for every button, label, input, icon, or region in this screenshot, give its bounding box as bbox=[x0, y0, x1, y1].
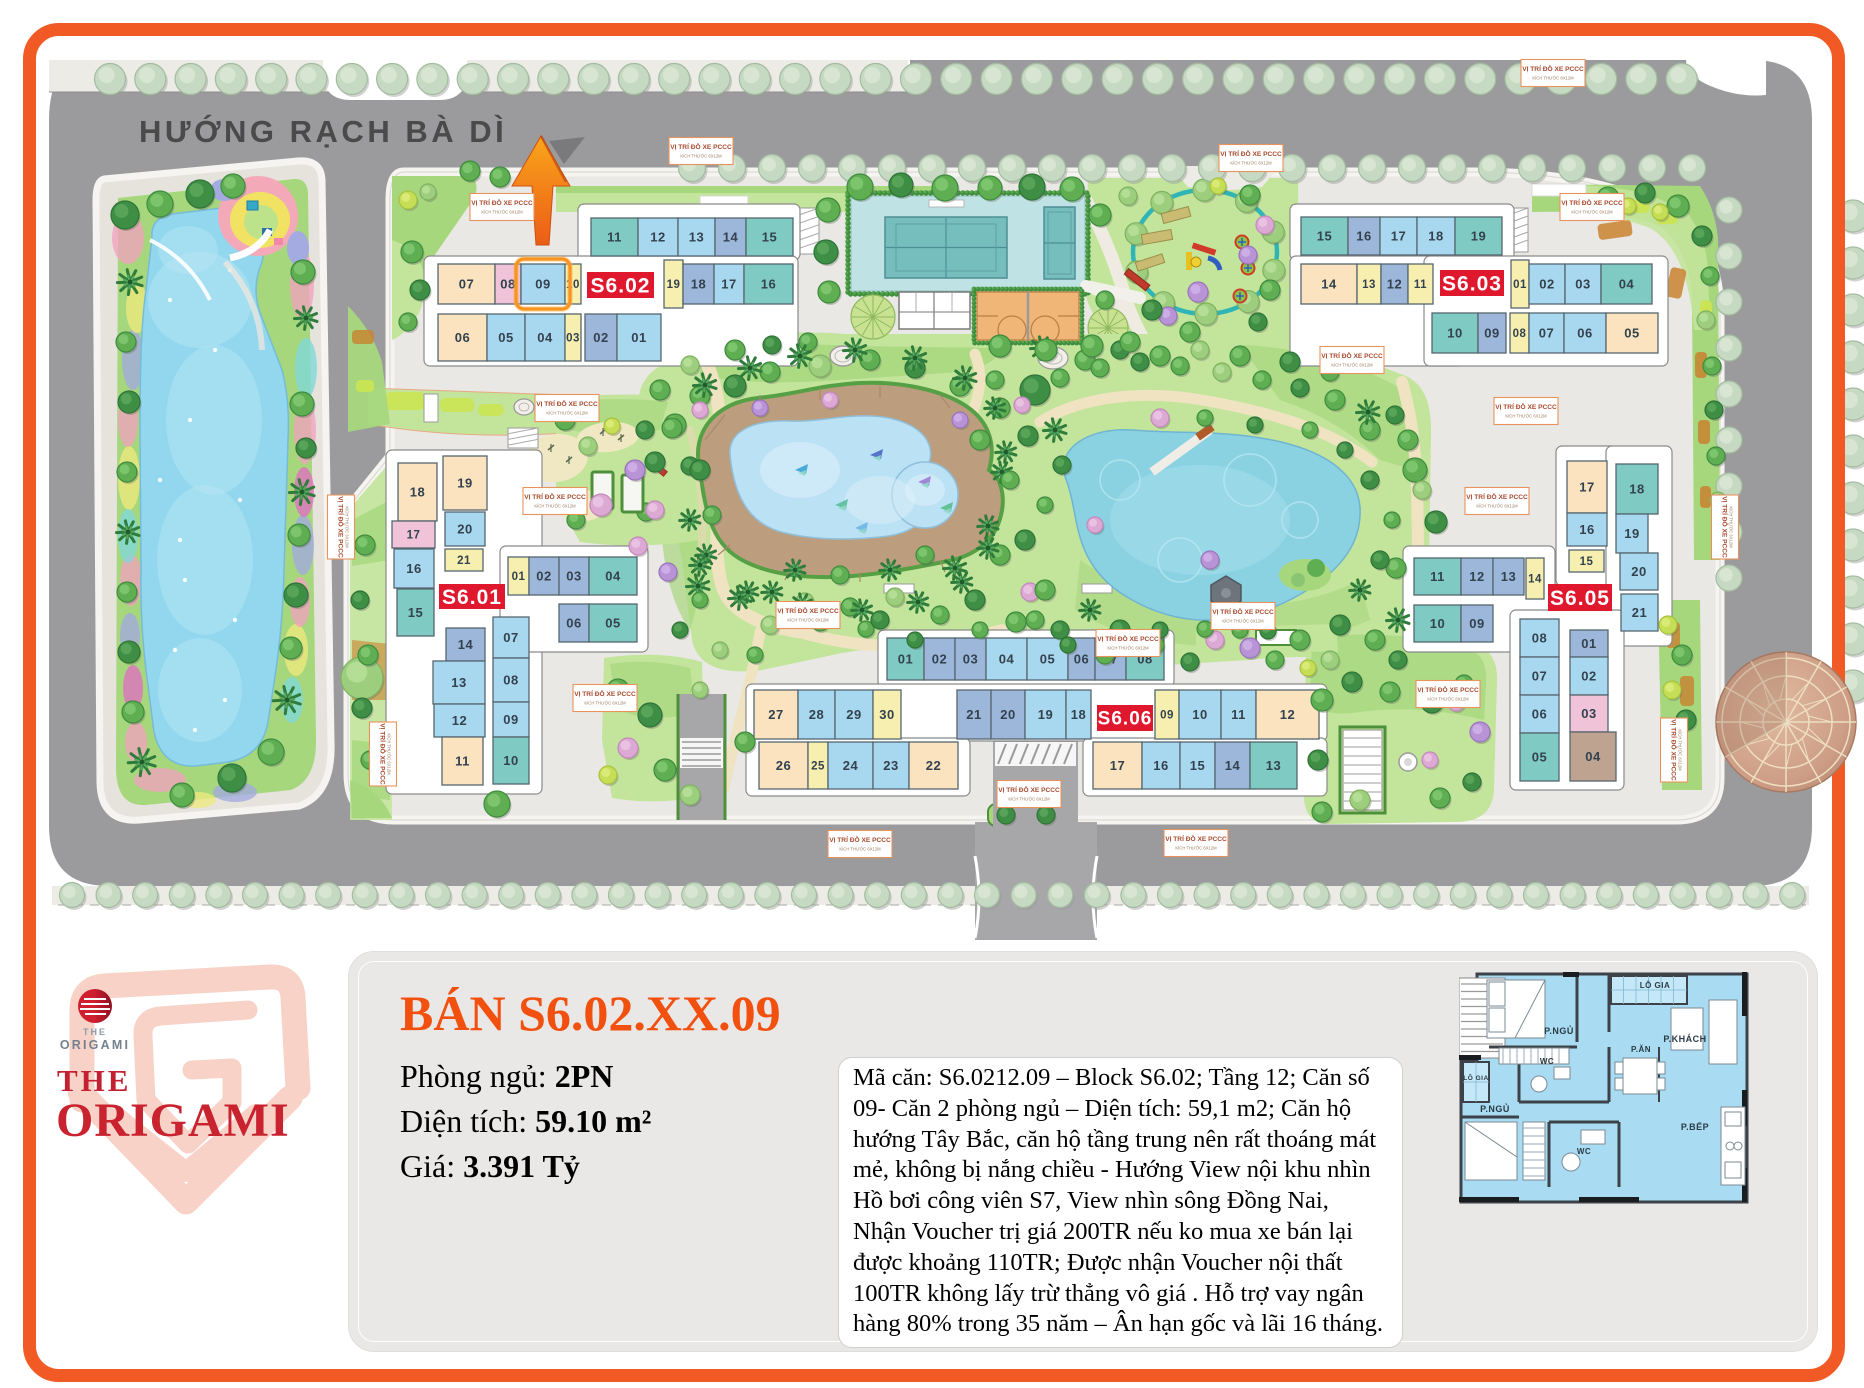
svg-text:VỊ TRÍ ĐỖ XE PCCC: VỊ TRÍ ĐỖ XE PCCC bbox=[1212, 607, 1274, 616]
svg-text:18: 18 bbox=[691, 277, 706, 292]
svg-text:VỊ TRÍ ĐỖ XE PCCC: VỊ TRÍ ĐỖ XE PCCC bbox=[1561, 198, 1623, 207]
svg-text:27: 27 bbox=[768, 707, 783, 722]
svg-text:17: 17 bbox=[407, 530, 421, 542]
svg-text:14: 14 bbox=[1225, 758, 1241, 773]
svg-text:13: 13 bbox=[1501, 569, 1516, 584]
svg-text:06: 06 bbox=[1532, 707, 1547, 722]
svg-text:09: 09 bbox=[535, 277, 550, 292]
svg-text:VỊ TRÍ ĐỖ XE PCCC: VỊ TRÍ ĐỖ XE PCCC bbox=[777, 606, 839, 615]
svg-text:KÍCH THƯỚC 6X12M: KÍCH THƯỚC 6X12M bbox=[1427, 697, 1469, 702]
svg-text:07: 07 bbox=[503, 630, 518, 645]
svg-text:11: 11 bbox=[1231, 707, 1246, 722]
svg-text:VỊ TRÍ ĐỖ XE PCCC: VỊ TRÍ ĐỖ XE PCCC bbox=[1321, 351, 1383, 360]
svg-text:17: 17 bbox=[1110, 758, 1125, 773]
svg-text:10: 10 bbox=[1430, 616, 1445, 631]
svg-text:02: 02 bbox=[593, 330, 608, 345]
svg-text:17: 17 bbox=[1579, 480, 1594, 495]
svg-text:LÔ GIA: LÔ GIA bbox=[1463, 1073, 1488, 1082]
svg-text:KÍCH THƯỚC 6X12M: KÍCH THƯỚC 6X12M bbox=[1532, 76, 1574, 81]
svg-text:P.NGỦ: P.NGỦ bbox=[1544, 1025, 1574, 1036]
svg-text:16: 16 bbox=[1356, 229, 1371, 244]
svg-text:05: 05 bbox=[1532, 750, 1547, 765]
svg-text:17: 17 bbox=[1391, 229, 1406, 244]
svg-text:05: 05 bbox=[498, 330, 513, 345]
svg-text:13: 13 bbox=[1362, 279, 1376, 291]
svg-text:13: 13 bbox=[1266, 758, 1281, 773]
svg-text:19: 19 bbox=[1038, 707, 1053, 722]
svg-text:HƯỚNG RẠCH BÀ DÌ: HƯỚNG RẠCH BÀ DÌ bbox=[139, 113, 507, 149]
svg-text:01: 01 bbox=[631, 330, 646, 345]
svg-text:29: 29 bbox=[846, 707, 861, 722]
svg-text:18: 18 bbox=[1071, 707, 1086, 722]
svg-text:VỊ TRÍ ĐỖ XE PCCC: VỊ TRÍ ĐỖ XE PCCC bbox=[379, 723, 388, 785]
svg-text:KÍCH THƯỚC 6X12M: KÍCH THƯỚC 6X12M bbox=[481, 210, 523, 215]
svg-text:VỊ TRÍ ĐỖ XE PCCC: VỊ TRÍ ĐỖ XE PCCC bbox=[1417, 685, 1479, 694]
svg-text:02: 02 bbox=[1581, 669, 1596, 684]
svg-text:10: 10 bbox=[1192, 707, 1207, 722]
svg-text:KÍCH THƯỚC 6X12M: KÍCH THƯỚC 6X12M bbox=[1230, 161, 1272, 166]
svg-text:KÍCH THƯỚC 6X12M: KÍCH THƯỚC 6X12M bbox=[1175, 846, 1217, 851]
svg-text:KÍCH THƯỚC 6X12M: KÍCH THƯỚC 6X12M bbox=[1008, 797, 1050, 802]
svg-text:KÍCH THƯỚC 6X12M: KÍCH THƯỚC 6X12M bbox=[584, 701, 626, 706]
svg-text:04: 04 bbox=[999, 652, 1015, 667]
svg-text:17: 17 bbox=[721, 277, 736, 292]
svg-text:WC: WC bbox=[1540, 1057, 1554, 1066]
svg-text:KÍCH THƯỚC 6X12M: KÍCH THƯỚC 6X12M bbox=[345, 506, 350, 548]
svg-text:28: 28 bbox=[809, 707, 824, 722]
svg-text:KÍCH THƯỚC 6X12M: KÍCH THƯỚC 6X12M bbox=[680, 154, 722, 159]
svg-text:08: 08 bbox=[1532, 631, 1547, 646]
svg-text:10: 10 bbox=[1447, 326, 1462, 341]
svg-text:09: 09 bbox=[1469, 616, 1484, 631]
svg-text:20: 20 bbox=[1000, 707, 1015, 722]
svg-text:03: 03 bbox=[566, 569, 581, 584]
svg-text:15: 15 bbox=[1317, 229, 1332, 244]
svg-text:S6.01: S6.01 bbox=[442, 586, 502, 609]
svg-text:VỊ TRÍ ĐỖ XE PCCC: VỊ TRÍ ĐỖ XE PCCC bbox=[829, 835, 891, 844]
svg-text:25: 25 bbox=[811, 761, 825, 773]
svg-text:VỊ TRÍ ĐỖ XE PCCC: VỊ TRÍ ĐỖ XE PCCC bbox=[1670, 719, 1679, 781]
svg-text:14: 14 bbox=[1321, 277, 1337, 292]
svg-text:04: 04 bbox=[537, 330, 553, 345]
svg-text:16: 16 bbox=[1153, 758, 1168, 773]
svg-text:KÍCH THƯỚC 6X12M: KÍCH THƯỚC 6X12M bbox=[534, 504, 576, 509]
svg-text:VỊ TRÍ ĐỖ XE PCCC: VỊ TRÍ ĐỖ XE PCCC bbox=[1466, 492, 1528, 501]
svg-text:21: 21 bbox=[457, 555, 471, 567]
svg-text:12: 12 bbox=[1280, 707, 1295, 722]
svg-text:ORIGAMI: ORIGAMI bbox=[60, 1038, 130, 1052]
svg-text:VỊ TRÍ ĐỖ XE PCCC: VỊ TRÍ ĐỖ XE PCCC bbox=[1165, 834, 1227, 843]
svg-text:02: 02 bbox=[932, 652, 947, 667]
svg-text:06: 06 bbox=[566, 616, 581, 631]
svg-text:16: 16 bbox=[1579, 522, 1594, 537]
svg-text:01: 01 bbox=[512, 571, 526, 583]
svg-text:03: 03 bbox=[1575, 277, 1590, 292]
svg-text:VỊ TRÍ ĐỖ XE PCCC: VỊ TRÍ ĐỖ XE PCCC bbox=[1522, 64, 1584, 73]
svg-text:12: 12 bbox=[1387, 277, 1402, 292]
svg-text:23: 23 bbox=[883, 758, 898, 773]
svg-text:19: 19 bbox=[1471, 229, 1486, 244]
svg-text:KÍCH THƯỚC 6X12M: KÍCH THƯỚC 6X12M bbox=[787, 618, 829, 623]
svg-text:08: 08 bbox=[1513, 328, 1527, 340]
svg-text:S6.02: S6.02 bbox=[591, 274, 651, 297]
svg-text:19: 19 bbox=[1624, 526, 1639, 541]
svg-text:24: 24 bbox=[843, 758, 859, 773]
svg-text:09: 09 bbox=[1160, 710, 1174, 722]
svg-text:VỊ TRÍ ĐỖ XE PCCC: VỊ TRÍ ĐỖ XE PCCC bbox=[1495, 402, 1557, 411]
svg-text:01: 01 bbox=[1581, 636, 1596, 651]
svg-text:08: 08 bbox=[503, 673, 518, 688]
svg-text:07: 07 bbox=[459, 277, 474, 292]
svg-text:15: 15 bbox=[1580, 556, 1594, 568]
svg-text:S6.06: S6.06 bbox=[1098, 709, 1153, 730]
svg-text:18: 18 bbox=[410, 485, 425, 500]
svg-text:KÍCH THƯỚC 6X12M: KÍCH THƯỚC 6X12M bbox=[1222, 619, 1264, 624]
svg-text:03: 03 bbox=[1581, 706, 1596, 721]
svg-text:05: 05 bbox=[1040, 652, 1055, 667]
svg-text:12: 12 bbox=[1469, 569, 1484, 584]
svg-text:06: 06 bbox=[1577, 326, 1592, 341]
svg-text:KÍCH THƯỚC 6X12M: KÍCH THƯỚC 6X12M bbox=[1729, 506, 1734, 548]
svg-text:14: 14 bbox=[1528, 574, 1542, 586]
svg-text:VỊ TRÍ ĐỖ XE PCCC: VỊ TRÍ ĐỖ XE PCCC bbox=[574, 689, 636, 698]
svg-text:05: 05 bbox=[605, 616, 620, 631]
svg-text:22: 22 bbox=[926, 758, 941, 773]
svg-text:KÍCH THƯỚC 6X12M: KÍCH THƯỚC 6X12M bbox=[1505, 414, 1547, 419]
svg-text:VỊ TRÍ ĐỖ XE PCCC: VỊ TRÍ ĐỖ XE PCCC bbox=[1721, 496, 1730, 558]
svg-text:20: 20 bbox=[1631, 564, 1646, 579]
svg-text:13: 13 bbox=[451, 675, 466, 690]
svg-text:21: 21 bbox=[1632, 605, 1647, 620]
svg-text:P.NGỦ: P.NGỦ bbox=[1480, 1103, 1510, 1114]
svg-text:S6.03: S6.03 bbox=[1442, 272, 1502, 295]
svg-text:12: 12 bbox=[452, 713, 467, 728]
svg-text:P.BẾP: P.BẾP bbox=[1681, 1122, 1709, 1132]
svg-text:KÍCH THƯỚC 6X12M: KÍCH THƯỚC 6X12M bbox=[1476, 504, 1518, 509]
svg-text:10: 10 bbox=[503, 753, 518, 768]
svg-text:KÍCH THƯỚC 6X12M: KÍCH THƯỚC 6X12M bbox=[839, 847, 881, 852]
svg-text:03: 03 bbox=[963, 652, 978, 667]
svg-text:19: 19 bbox=[457, 476, 472, 491]
svg-text:01: 01 bbox=[1513, 279, 1527, 291]
svg-text:VỊ TRÍ ĐỖ XE PCCC: VỊ TRÍ ĐỖ XE PCCC bbox=[998, 785, 1060, 794]
svg-text:07: 07 bbox=[1539, 326, 1554, 341]
svg-text:KÍCH THƯỚC 6X12M: KÍCH THƯỚC 6X12M bbox=[1107, 646, 1149, 651]
svg-text:VỊ TRÍ ĐỖ XE PCCC: VỊ TRÍ ĐỖ XE PCCC bbox=[536, 399, 598, 408]
svg-text:03: 03 bbox=[566, 333, 580, 345]
svg-text:04: 04 bbox=[605, 569, 621, 584]
svg-text:P.KHÁCH: P.KHÁCH bbox=[1663, 1034, 1706, 1044]
svg-text:09: 09 bbox=[503, 712, 518, 727]
svg-text:KÍCH THƯỚC 6X12M: KÍCH THƯỚC 6X12M bbox=[546, 411, 588, 416]
svg-text:VỊ TRÍ ĐỖ XE PCCC: VỊ TRÍ ĐỖ XE PCCC bbox=[524, 492, 586, 501]
svg-text:LÔ GIA: LÔ GIA bbox=[1640, 981, 1671, 990]
svg-text:P.ĂN: P.ĂN bbox=[1631, 1045, 1651, 1054]
svg-text:WC: WC bbox=[1577, 1147, 1591, 1156]
svg-text:11: 11 bbox=[607, 230, 622, 245]
svg-text:20: 20 bbox=[457, 522, 472, 537]
svg-text:THE: THE bbox=[83, 1027, 107, 1037]
svg-text:04: 04 bbox=[1585, 749, 1601, 764]
svg-text:07: 07 bbox=[1532, 669, 1547, 684]
svg-text:15: 15 bbox=[1190, 758, 1205, 773]
svg-text:VỊ TRÍ ĐỖ XE PCCC: VỊ TRÍ ĐỖ XE PCCC bbox=[1220, 149, 1282, 158]
svg-text:KÍCH THƯỚC 6X12M: KÍCH THƯỚC 6X12M bbox=[1571, 210, 1613, 215]
svg-text:09: 09 bbox=[1484, 326, 1499, 341]
svg-text:18: 18 bbox=[1428, 229, 1443, 244]
svg-text:VỊ TRÍ ĐỖ XE PCCC: VỊ TRÍ ĐỖ XE PCCC bbox=[337, 496, 346, 558]
svg-text:05: 05 bbox=[1624, 326, 1639, 341]
svg-text:VỊ TRÍ ĐỖ XE PCCC: VỊ TRÍ ĐỖ XE PCCC bbox=[471, 198, 533, 207]
svg-text:21: 21 bbox=[966, 707, 981, 722]
svg-text:06: 06 bbox=[1074, 652, 1089, 667]
svg-text:15: 15 bbox=[762, 230, 777, 245]
svg-text:VỊ TRÍ ĐỖ XE PCCC: VỊ TRÍ ĐỖ XE PCCC bbox=[670, 142, 732, 151]
svg-text:14: 14 bbox=[458, 637, 474, 652]
svg-text:15: 15 bbox=[408, 605, 423, 620]
svg-text:S6.05: S6.05 bbox=[1550, 587, 1610, 610]
svg-text:VỊ TRÍ ĐỖ XE PCCC: VỊ TRÍ ĐỖ XE PCCC bbox=[1097, 634, 1159, 643]
svg-text:01: 01 bbox=[898, 652, 913, 667]
svg-text:11: 11 bbox=[455, 754, 470, 769]
svg-text:06: 06 bbox=[455, 330, 470, 345]
svg-text:30: 30 bbox=[879, 707, 894, 722]
svg-text:13: 13 bbox=[689, 230, 704, 245]
svg-text:11: 11 bbox=[1414, 279, 1427, 291]
svg-text:04: 04 bbox=[1619, 277, 1635, 292]
svg-text:KÍCH THƯỚC 6X12M: KÍCH THƯỚC 6X12M bbox=[1331, 363, 1373, 368]
svg-text:12: 12 bbox=[650, 230, 665, 245]
svg-text:KÍCH THƯỚC 6X12M: KÍCH THƯỚC 6X12M bbox=[387, 733, 392, 775]
svg-text:11: 11 bbox=[1430, 569, 1445, 584]
svg-text:KÍCH THƯỚC 6X12M: KÍCH THƯỚC 6X12M bbox=[1678, 729, 1683, 771]
svg-text:19: 19 bbox=[667, 279, 681, 291]
svg-text:02: 02 bbox=[536, 569, 551, 584]
svg-text:16: 16 bbox=[406, 561, 421, 576]
svg-text:02: 02 bbox=[1539, 277, 1554, 292]
svg-text:14: 14 bbox=[723, 230, 739, 245]
svg-text:18: 18 bbox=[1629, 482, 1644, 497]
svg-text:16: 16 bbox=[761, 277, 776, 292]
svg-text:26: 26 bbox=[776, 758, 791, 773]
